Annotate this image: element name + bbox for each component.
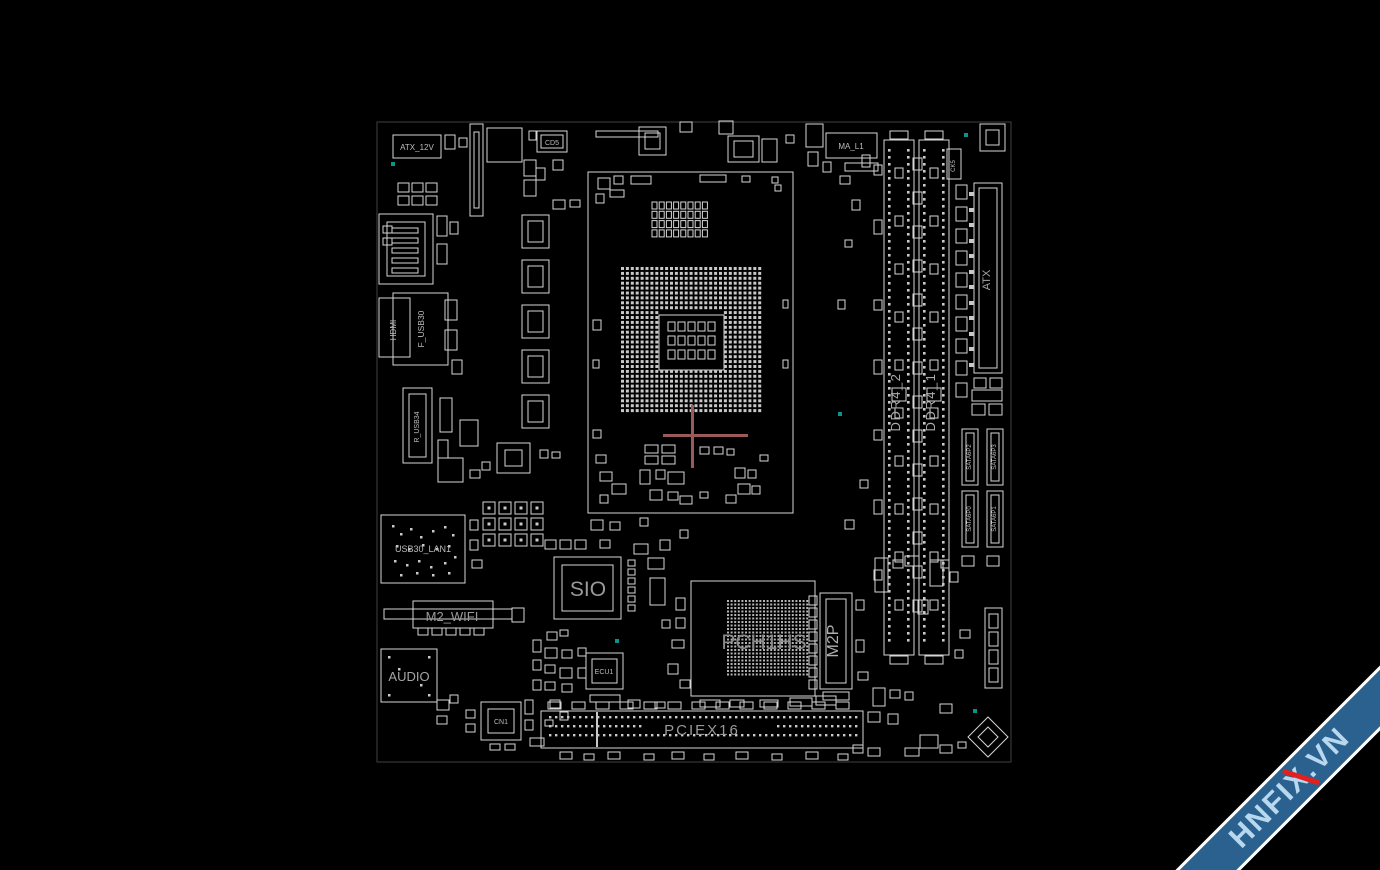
component <box>690 380 693 383</box>
component <box>714 375 717 378</box>
component <box>799 656 801 658</box>
component <box>942 359 945 362</box>
component <box>695 287 698 290</box>
label-sata-port-1: SATA6P2 <box>967 444 973 470</box>
label-m2-wifi-slot: M2_WIFI <box>426 609 479 624</box>
component <box>758 404 761 407</box>
component <box>695 296 698 299</box>
component <box>584 754 594 760</box>
component <box>942 499 945 502</box>
component <box>685 292 688 295</box>
component <box>753 350 756 353</box>
component <box>969 223 974 227</box>
component <box>942 303 945 306</box>
component <box>437 216 447 236</box>
component <box>626 282 629 285</box>
component <box>774 607 776 609</box>
component <box>729 370 732 373</box>
component <box>497 443 530 473</box>
component <box>699 287 702 290</box>
label-m2p-slot: M2P <box>825 625 842 658</box>
component <box>920 735 938 748</box>
component <box>888 184 891 187</box>
component <box>788 621 790 623</box>
component <box>907 450 910 453</box>
component <box>942 163 945 166</box>
component <box>724 331 727 334</box>
component <box>744 277 747 280</box>
component <box>752 618 754 620</box>
component <box>695 292 698 295</box>
component <box>942 219 945 222</box>
component <box>777 621 779 623</box>
component <box>809 608 817 617</box>
component <box>748 375 751 378</box>
component <box>641 321 644 324</box>
component <box>680 277 683 280</box>
component <box>767 674 769 676</box>
component <box>907 590 910 593</box>
component <box>708 350 715 359</box>
component <box>858 672 868 680</box>
component <box>650 341 653 344</box>
component <box>641 360 644 363</box>
component <box>729 277 732 280</box>
label-usb3-lan-stack: USB30_LAN1 <box>395 544 451 554</box>
component <box>698 336 705 345</box>
component <box>940 704 952 713</box>
component <box>942 366 945 369</box>
component <box>895 360 903 370</box>
component <box>762 139 777 162</box>
component <box>659 315 724 370</box>
component <box>660 394 663 397</box>
component <box>700 492 708 498</box>
component <box>573 716 575 718</box>
component <box>437 700 449 710</box>
component <box>729 306 732 309</box>
component <box>739 301 742 304</box>
component <box>709 370 712 373</box>
component <box>777 674 779 676</box>
component <box>907 555 910 558</box>
component <box>729 390 732 393</box>
component <box>756 660 758 662</box>
component <box>748 409 751 412</box>
component <box>942 583 945 586</box>
component <box>596 194 604 203</box>
component <box>969 254 974 258</box>
component <box>907 492 910 495</box>
component <box>942 177 945 180</box>
component <box>536 539 539 542</box>
component <box>759 611 761 613</box>
component <box>626 326 629 329</box>
component <box>670 399 673 402</box>
component <box>488 507 491 510</box>
component <box>704 380 707 383</box>
component <box>631 341 634 344</box>
component <box>752 600 754 602</box>
component <box>665 272 668 275</box>
component <box>923 226 926 229</box>
component <box>753 380 756 383</box>
component <box>520 507 523 510</box>
component <box>729 336 732 339</box>
component <box>603 734 605 736</box>
component <box>888 520 891 523</box>
component <box>690 385 693 388</box>
component <box>695 385 698 388</box>
component <box>646 296 649 299</box>
component <box>942 261 945 264</box>
component <box>724 287 727 290</box>
component <box>837 734 839 736</box>
component <box>756 667 758 669</box>
component <box>695 221 700 228</box>
component <box>650 404 653 407</box>
component <box>621 375 624 378</box>
component <box>942 562 945 565</box>
component <box>626 360 629 363</box>
component <box>665 375 668 378</box>
component <box>923 324 926 327</box>
component <box>753 287 756 290</box>
component <box>758 370 761 373</box>
component <box>748 321 751 324</box>
component <box>621 277 624 280</box>
component <box>719 394 722 397</box>
component <box>777 670 779 672</box>
component <box>482 462 490 470</box>
component <box>690 306 693 309</box>
component <box>774 621 776 623</box>
component <box>799 604 801 606</box>
component <box>748 272 751 275</box>
component <box>806 600 808 602</box>
component <box>788 656 790 658</box>
component <box>777 725 779 727</box>
component <box>690 287 693 290</box>
component <box>907 611 910 614</box>
component <box>533 660 541 670</box>
component <box>685 287 688 290</box>
component <box>806 628 808 630</box>
component <box>646 311 649 314</box>
component <box>752 614 754 616</box>
component <box>923 240 926 243</box>
component <box>763 614 765 616</box>
component <box>942 506 945 509</box>
component <box>670 287 673 290</box>
component <box>785 628 787 630</box>
component <box>809 620 817 629</box>
component <box>969 192 974 196</box>
component <box>989 668 998 682</box>
component <box>631 399 634 402</box>
component <box>758 345 761 348</box>
component <box>579 716 581 718</box>
component <box>621 409 624 412</box>
component <box>989 614 998 628</box>
component <box>942 422 945 425</box>
component <box>719 292 722 295</box>
component <box>741 734 743 736</box>
component <box>759 674 761 676</box>
component <box>709 272 712 275</box>
component <box>729 331 732 334</box>
component <box>731 663 733 665</box>
component <box>989 404 1002 415</box>
component <box>803 667 805 669</box>
component <box>753 341 756 344</box>
component <box>675 267 678 270</box>
bios-chip <box>968 717 1008 757</box>
component <box>621 292 624 295</box>
component <box>774 604 776 606</box>
component <box>621 716 623 718</box>
component <box>631 350 634 353</box>
component <box>660 404 663 407</box>
component <box>695 399 698 402</box>
component <box>745 614 747 616</box>
component <box>795 725 797 727</box>
component <box>680 375 683 378</box>
component <box>573 725 575 727</box>
label-dimm-ddr4-1: DDR4_1 <box>923 373 938 432</box>
component <box>748 390 751 393</box>
component <box>579 734 581 736</box>
component <box>895 312 903 322</box>
component <box>748 370 751 373</box>
component <box>745 670 747 672</box>
component <box>907 464 910 467</box>
component <box>727 670 729 672</box>
component <box>759 716 761 718</box>
label-cd5: CD5 <box>545 140 559 147</box>
component <box>729 267 732 270</box>
component <box>719 380 722 383</box>
component <box>650 282 653 285</box>
component <box>719 272 722 275</box>
component <box>855 725 857 727</box>
component <box>923 205 926 208</box>
component <box>969 239 974 243</box>
component <box>628 587 635 593</box>
component <box>655 287 658 290</box>
component <box>895 600 903 610</box>
component <box>626 341 629 344</box>
component <box>655 267 658 270</box>
component <box>609 725 611 727</box>
component <box>627 734 629 736</box>
component <box>675 390 678 393</box>
component <box>530 738 544 746</box>
component <box>795 611 797 613</box>
component <box>459 138 467 147</box>
component <box>907 289 910 292</box>
component <box>593 360 599 368</box>
component <box>781 628 783 630</box>
component <box>734 656 736 658</box>
component <box>714 385 717 388</box>
component <box>753 277 756 280</box>
component <box>758 394 761 397</box>
component <box>675 370 678 373</box>
component <box>645 445 658 453</box>
component <box>744 331 747 334</box>
component <box>942 373 945 376</box>
component <box>727 607 729 609</box>
component <box>907 583 910 586</box>
component <box>783 300 788 308</box>
component <box>631 375 634 378</box>
component <box>528 401 543 422</box>
component <box>650 336 653 339</box>
component <box>795 614 797 616</box>
component <box>446 628 456 635</box>
component <box>621 272 624 275</box>
component <box>709 277 712 280</box>
component <box>734 360 737 363</box>
component <box>907 247 910 250</box>
component <box>888 247 891 250</box>
component <box>646 301 649 304</box>
component <box>923 464 926 467</box>
component <box>685 380 688 383</box>
component <box>744 287 747 290</box>
component <box>989 632 998 646</box>
component <box>593 320 601 330</box>
component <box>930 312 938 322</box>
component <box>675 292 678 295</box>
bios-chip-inner <box>978 727 998 747</box>
component <box>540 450 548 458</box>
component <box>666 221 671 228</box>
component <box>704 282 707 285</box>
component <box>719 385 722 388</box>
component <box>714 390 717 393</box>
component <box>923 275 926 278</box>
component <box>690 292 693 295</box>
component <box>888 604 891 607</box>
component <box>942 387 945 390</box>
component <box>670 296 673 299</box>
component <box>665 404 668 407</box>
component <box>650 360 653 363</box>
component <box>752 625 754 627</box>
component <box>695 202 700 209</box>
component <box>744 326 747 329</box>
component <box>923 177 926 180</box>
component <box>714 409 717 412</box>
component <box>567 734 569 736</box>
component <box>734 326 737 329</box>
component <box>636 296 639 299</box>
component <box>528 356 543 377</box>
component <box>923 317 926 320</box>
component <box>907 548 910 551</box>
component <box>631 292 634 295</box>
component <box>799 621 801 623</box>
component <box>907 331 910 334</box>
component <box>758 380 761 383</box>
component <box>690 390 693 393</box>
component <box>781 656 783 658</box>
component <box>695 404 698 407</box>
component <box>727 621 729 623</box>
component <box>628 596 635 602</box>
component <box>907 639 910 642</box>
component <box>907 618 910 621</box>
component <box>734 385 737 388</box>
component <box>753 306 756 309</box>
component <box>738 667 740 669</box>
component <box>777 656 779 658</box>
teal-marker <box>973 709 977 713</box>
component <box>655 296 658 299</box>
component <box>744 390 747 393</box>
component <box>504 507 507 510</box>
component <box>739 316 742 319</box>
component <box>662 445 675 453</box>
component <box>907 275 910 278</box>
component <box>907 380 910 383</box>
component <box>536 523 539 526</box>
component <box>626 370 629 373</box>
component <box>785 604 787 606</box>
component <box>729 326 732 329</box>
component <box>907 422 910 425</box>
component <box>788 670 790 672</box>
component <box>729 399 732 402</box>
component <box>744 267 747 270</box>
component <box>729 360 732 363</box>
component <box>923 611 926 614</box>
component <box>641 326 644 329</box>
component <box>709 296 712 299</box>
component <box>745 600 747 602</box>
component <box>888 541 891 544</box>
component <box>923 478 926 481</box>
component <box>888 254 891 257</box>
component <box>700 447 709 454</box>
component <box>631 277 634 280</box>
component <box>709 375 712 378</box>
component <box>767 625 769 627</box>
component <box>795 621 797 623</box>
component <box>724 370 727 373</box>
component <box>615 716 617 718</box>
component <box>719 306 722 309</box>
component <box>792 607 794 609</box>
component <box>853 745 863 753</box>
component <box>774 600 776 602</box>
component <box>727 618 729 620</box>
component <box>680 287 683 290</box>
component <box>665 296 668 299</box>
component <box>799 614 801 616</box>
component <box>585 734 587 736</box>
component <box>990 378 1002 388</box>
component <box>655 360 658 363</box>
component <box>705 716 707 718</box>
component <box>734 600 736 602</box>
component <box>907 156 910 159</box>
label-sata-port-4: SATA6P1 <box>992 506 998 532</box>
component <box>685 409 688 412</box>
component <box>650 345 653 348</box>
